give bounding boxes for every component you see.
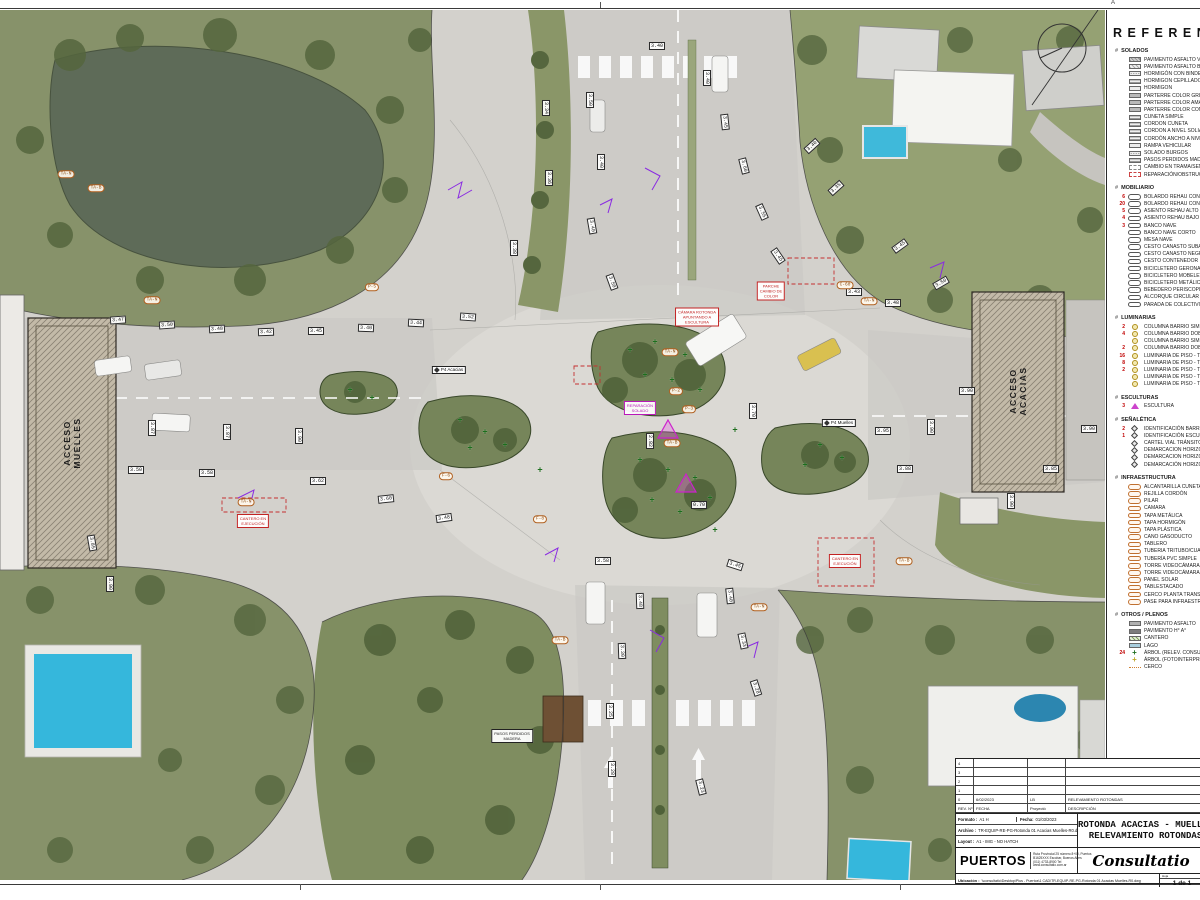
legend-item-label: BANCO NAVE CORTO <box>1144 230 1196 236</box>
legend-item: 2IDENTIFICACIÓN BARRIO <box>1113 425 1200 432</box>
legend-item-icon-lines <box>1128 158 1141 163</box>
legend-item-icon-circy <box>1128 374 1141 380</box>
legend-item-icon-gray <box>1128 107 1141 112</box>
legend-item: 2COLUMNA BARRIO DOBLE PEATONAL BAJA <box>1113 345 1200 352</box>
ovalo-icon <box>1128 563 1141 569</box>
legend-item: BANCO NAVE CORTO <box>1113 229 1200 236</box>
legend-item-count: 2 <box>1113 367 1125 373</box>
legend-section: #MOBILIARIO6BOLARDO REHAU CON LUZ20BOLAR… <box>1113 185 1200 308</box>
legend-item-label: CERCO PLANTA TRANSFORMADORA <box>1144 592 1200 598</box>
dots-icon <box>1129 71 1141 76</box>
legend-item-icon-swcant <box>1128 636 1141 641</box>
legend-item-icon-plusg: + <box>1128 650 1141 655</box>
legend-item-icon-circy <box>1128 345 1141 351</box>
legend-item-label: PAVIMENTO H° A° <box>1144 628 1186 634</box>
legend-item-label: HORMIGÓN CON BINDER <box>1144 71 1200 77</box>
legend-item-label: TAPA METÁLICA <box>1144 513 1182 519</box>
revision-cell <box>1066 759 1200 768</box>
revision-cell: FECHA <box>974 804 1028 813</box>
legend-item: CESTO CANASTO SUBA <box>1113 244 1200 251</box>
swha-icon <box>1129 629 1141 634</box>
hatch2-icon <box>1129 57 1141 62</box>
sheet-number-value: 1 de 1 <box>1160 879 1200 887</box>
format-value: A1 H <box>979 817 988 822</box>
legend-item-label: IDENTIFICACIÓN BARRIO <box>1144 426 1200 432</box>
legend-item-label: ÁRBOL (FOTOINTERPRETACIÓN) <box>1144 657 1200 663</box>
swasph-icon <box>1129 621 1141 626</box>
legend-item: REPARACIÓN/OBSTRUCCIÓN EN SOLADO <box>1113 171 1200 178</box>
ovalo-icon <box>1128 585 1141 591</box>
legend-item: COLUMNA BARRIO SIMPLE PEATONAL BAJA <box>1113 338 1200 345</box>
legend-item-icon-hatch1 <box>1128 64 1141 69</box>
legend-section: #OTROS / PLENOSPAVIMENTO ASFALTOPAVIMENT… <box>1113 612 1200 670</box>
legend-item-label: BOLARDO REHAU CON REFLECTIVO <box>1144 201 1200 207</box>
legend-item: ALCORQUE CIRCULAR SIMPLE <box>1113 294 1200 301</box>
ovalo-icon <box>1128 498 1141 504</box>
legend-item-label: TABLESTACADO <box>1144 584 1183 590</box>
plusy-icon: + <box>1132 657 1137 662</box>
legend-item-label: ALCANTARILLA CUNETA <box>1144 484 1200 490</box>
legend-item-label: SOLADO BURGOS <box>1144 150 1188 156</box>
ovalo-icon <box>1128 577 1141 583</box>
legend-item: CORDÓN A NIVEL SOLIA INTERTRABADA <box>1113 128 1200 135</box>
legend-item: TUBERÍA TRITUBO/CUATRITUBO <box>1113 548 1200 555</box>
location-path-row: Ubicación : \\consultatio\Desktop\Plus -… <box>956 874 1160 887</box>
legend-item-icon-circy <box>1128 338 1141 344</box>
legend-item-label: COLUMNA BARRIO SIMPLE VIAL ALTA <box>1144 324 1200 330</box>
legend-item-icon-oval <box>1128 273 1141 279</box>
legend-item-icon-oval <box>1128 280 1141 286</box>
dashr-icon <box>1129 172 1141 177</box>
legend-item-icon-oval <box>1128 266 1141 272</box>
legend-item-label: PARTERRE COLOR COMB. AMARILLO Y ROJO <box>1144 107 1200 113</box>
legend-item-label: TUBERÍA PVC SIMPLE <box>1144 556 1197 562</box>
legend-item: TUBERÍA PVC SIMPLE <box>1113 555 1200 562</box>
legend-item-label: COLUMNA BARRIO DOBLE PEATONAL BAJA <box>1144 345 1200 351</box>
legend-item-icon-ovalo <box>1128 527 1141 533</box>
lines-icon <box>1129 79 1141 84</box>
diam-icon <box>1131 425 1138 432</box>
ovalo-icon <box>1128 570 1141 576</box>
revision-cell: 3 <box>956 768 974 777</box>
revision-cell <box>1066 777 1200 786</box>
legend-item: PAVIMENTO ASFALTO BICISENDA <box>1113 63 1200 70</box>
legend-item-icon-plusy: + <box>1128 657 1141 662</box>
legend-item-label: BICICLETERO METÁLICO <box>1144 280 1200 286</box>
legend-item: LUMINARIA DE PISO - TIPO TIRA LED <box>1113 381 1200 388</box>
legend-item: 2COLUMNA BARRIO SIMPLE VIAL ALTA <box>1113 323 1200 330</box>
ovalo-icon <box>1128 520 1141 526</box>
legend-item-icon-swha <box>1128 629 1141 634</box>
revision-cell <box>1066 786 1200 795</box>
legend-item: BICICLETERO GERONA <box>1113 265 1200 272</box>
legend-item: 24+ÁRBOL (RELEV. CONSULTATIO) <box>1113 649 1200 656</box>
legend-item-icon-gray <box>1128 100 1141 105</box>
revision-cell: REV. Nº <box>956 804 974 813</box>
oval-icon <box>1128 287 1141 293</box>
legend-item: CORDÓN ANCHO A NIVEL SOLIA INTERTRABADA <box>1113 135 1200 142</box>
legend-item: TORRE VIDEOCÁMARA SIMPLE <box>1113 562 1200 569</box>
circy-icon <box>1132 360 1138 366</box>
legend-item-label: PARTERRE COLOR GRIS <box>1144 93 1200 99</box>
ovalo-icon <box>1128 542 1141 548</box>
legend-item: PARTERRE COLOR GRIS <box>1113 92 1200 99</box>
legend-item-count: 16 <box>1113 353 1125 359</box>
legend-item-icon-circy <box>1128 324 1141 330</box>
dashg-icon <box>1129 165 1141 170</box>
legend-item-icon-ovalo <box>1128 506 1141 512</box>
revision-cell: RELEVAMIENTO ROTONDAS <box>1066 795 1200 804</box>
legend-item-icon-hatch2 <box>1128 57 1141 62</box>
oval-icon <box>1128 259 1141 265</box>
lines-icon <box>1129 129 1141 134</box>
legend-item-icon-ovalo <box>1128 513 1141 519</box>
diam-icon <box>1131 432 1138 439</box>
legend-item-label: CERCO <box>1144 664 1162 670</box>
format-row: Formato :A1 H Fecha:01/03/2023 <box>956 814 1077 825</box>
revision-cell <box>1028 777 1066 786</box>
ovalo-icon <box>1128 592 1141 598</box>
frame-tick <box>900 884 901 890</box>
legend-item-icon-dots <box>1128 151 1141 156</box>
legend-item: 8LUMINARIA DE PISO - TIPO CILINDRO ALTO <box>1113 359 1200 366</box>
legend-item-icon-circy <box>1128 360 1141 366</box>
legend-item-icon-diam <box>1128 441 1141 446</box>
circy-icon <box>1132 374 1138 380</box>
legend-item-icon-circy <box>1128 353 1141 359</box>
ovalo-icon <box>1128 491 1141 497</box>
swcant-icon <box>1129 636 1141 641</box>
legend-item-icon-dashr <box>1128 172 1141 177</box>
oval-icon <box>1128 230 1141 236</box>
legend-item-count: 4 <box>1113 215 1125 221</box>
legend-item: TABLESTACADO <box>1113 584 1200 591</box>
file-row: Archivo :TR-EQUIP-RE-PG-Rotonda 01 Acaci… <box>956 825 1077 836</box>
revision-cell <box>974 786 1028 795</box>
sheet-number-cell: Hoja 1 de 1 <box>1160 874 1200 887</box>
revision-cell: 0 <box>956 795 974 804</box>
legend-item: CERCO PLANTA TRANSFORMADORA <box>1113 591 1200 598</box>
legend-section-title: #INFRAESTRUCTURA <box>1115 475 1200 481</box>
legend-item: PARTERRE COLOR COMB. AMARILLO Y ROJO <box>1113 106 1200 113</box>
oval-icon <box>1128 216 1141 222</box>
legend-item: TAPA HORMIGÓN <box>1113 519 1200 526</box>
legend-item-label: TORRE VIDEOCÁMARA SIMPLE <box>1144 563 1200 569</box>
legend-item-icon-ovalo <box>1128 549 1141 555</box>
legend-item-icon-light <box>1128 86 1141 91</box>
drawing-sheet: A <box>0 0 1200 900</box>
revision-cell <box>1028 768 1066 777</box>
legend-item-label: ASIENTO REHAU BAJO <box>1144 215 1199 221</box>
legend-item: HORMIGÓN CEPILLADO <box>1113 78 1200 85</box>
oval-icon <box>1128 295 1141 301</box>
legend-item: 2LUMINARIA DE PISO - TIPO CILINDRO BAJO <box>1113 366 1200 373</box>
revision-cell: 6/02/2023 <box>974 795 1028 804</box>
legend-item: +ÁRBOL (FOTOINTERPRETACIÓN) <box>1113 656 1200 663</box>
oval-icon <box>1128 223 1141 229</box>
legend-item-icon-gray <box>1128 93 1141 98</box>
legend-item-label: CARTEL VIAL TRÁNSITO-ORIENTACIÓN <box>1144 440 1200 446</box>
legend-item: CAÑO GASODUCTO <box>1113 534 1200 541</box>
legend-item-label: CAMBIO EN TRAMA/SENTIDO ADOQUINADO <box>1144 164 1200 170</box>
legend-item-icon-lines <box>1128 79 1141 84</box>
ovalo-icon <box>1128 549 1141 555</box>
legend-item: CESTO CONTENEDOR <box>1113 258 1200 265</box>
oval-icon <box>1128 302 1141 308</box>
legend-item-label: TABLERO <box>1144 541 1167 547</box>
legend-item: 5ASIENTO REHAU ALTO <box>1113 208 1200 215</box>
legend-item: HORMIGÓN CON BINDER <box>1113 70 1200 77</box>
layout-row: Layout :A1 - IMG - NO HATCH <box>956 836 1077 847</box>
legend-item-icon-dashg <box>1128 165 1141 170</box>
legend-item-label: HORMIGÓN <box>1144 85 1172 91</box>
ovalo-icon <box>1128 484 1141 490</box>
legend-item-count: 24 <box>1113 650 1125 656</box>
section-mark-icon: # <box>1115 612 1118 618</box>
legend-item: PAVIMENTO H° A° <box>1113 628 1200 635</box>
legend-item: CÁMARA <box>1113 505 1200 512</box>
legend-item-count: 2 <box>1113 324 1125 330</box>
circy-icon <box>1132 331 1138 337</box>
legend-item-label: CORDÓN A NIVEL SOLIA INTERTRABADA <box>1144 128 1200 134</box>
section-mark-icon: # <box>1115 417 1118 423</box>
legend-item: CUNETA SIMPLE <box>1113 114 1200 121</box>
legend-item: 16LUMINARIA DE PISO - TIPO RECTANGULAR <box>1113 352 1200 359</box>
legend-item-count: 3 <box>1113 403 1125 409</box>
legend-item-label: ÁRBOL (RELEV. CONSULTATIO) <box>1144 650 1200 656</box>
legend-item-count: 1 <box>1113 433 1125 439</box>
circy-icon <box>1132 345 1138 351</box>
section-mark-icon: # <box>1115 315 1118 321</box>
frame-tick <box>600 884 601 890</box>
revision-cell: 2 <box>956 777 974 786</box>
legend-item-icon-oval <box>1128 287 1141 293</box>
legend-item-label: ESCULTURA <box>1144 403 1174 409</box>
oval-icon <box>1128 266 1141 272</box>
legend-item-label: CESTO CANASTO SUBA <box>1144 244 1200 250</box>
light-icon <box>1129 143 1141 148</box>
oval-icon <box>1128 237 1141 243</box>
plusg-icon: + <box>1132 650 1137 655</box>
frame-tick <box>600 2 601 8</box>
drawing-title-line1: ROTONDA ACACIAS - MUELLES <box>1078 820 1200 831</box>
legend-section-title: #SEÑALÉTICA <box>1115 417 1200 423</box>
legend-item: BICICLETERO MOBELETTA <box>1113 272 1200 279</box>
legend-item: PAVIMENTO ASFALTO <box>1113 620 1200 627</box>
legend-item-count: 20 <box>1113 201 1125 207</box>
legend-item-label: PAVIMENTO ASFALTO BICISENDA <box>1144 64 1200 70</box>
legend-item-icon-ovalo <box>1128 585 1141 591</box>
legend-item: TAPA METÁLICA <box>1113 512 1200 519</box>
revision-cell <box>974 777 1028 786</box>
legend-panel: REFERENCIAS #SOLADOSPAVIMENTO ASFALTO VE… <box>1106 10 1200 882</box>
legend-item: DEMARCACIÓN HORIZONTAL ROTONDA <box>1113 454 1200 461</box>
legend-item-label: PARADA DE COLECTIVO <box>1144 302 1200 308</box>
legend-item-label: TAPA HORMIGÓN <box>1144 520 1185 526</box>
legend-item-icon-diam <box>1128 462 1141 467</box>
legend-item: PARADA DE COLECTIVO <box>1113 301 1200 308</box>
legend-item-icon-ovalo <box>1128 491 1141 497</box>
legend-item-label: RAMPA VEHICULAR <box>1144 143 1191 149</box>
legend-item: PASE PARA INFRAESTRUCTURA (EN DESUSO) <box>1113 598 1200 605</box>
legend-item-icon-oval <box>1128 252 1141 258</box>
legend-item-label: PASE PARA INFRAESTRUCTURA (EN DESUSO) <box>1144 599 1200 605</box>
legend-item: DEMARCACIÓN HORIZONTAL BICISENDA <box>1113 461 1200 468</box>
oval-icon <box>1128 280 1141 286</box>
legend-item-icon-oval <box>1128 244 1141 250</box>
legend-item-label: LUMINARIA DE PISO - TIPO RECTANGULAR <box>1144 353 1200 359</box>
legend-item: REJILLA CORDÓN <box>1113 490 1200 497</box>
legend-item: PASOS PERDIDOS MADERA <box>1113 157 1200 164</box>
legend-item-label: BANCO NAVE <box>1144 223 1176 229</box>
lines-icon <box>1129 115 1141 120</box>
legend-item: 6BOLARDO REHAU CON LUZ <box>1113 193 1200 200</box>
legend-item: PARTERRE COLOR AMARILLO <box>1113 99 1200 106</box>
legend-item-label: LUMINARIA DE PISO - TIPO CILINDRO ALTO <box>1144 360 1200 366</box>
legend-item: BICICLETERO METÁLICO <box>1113 279 1200 286</box>
legend-item-icon-circy <box>1128 367 1141 373</box>
swlago-icon <box>1129 643 1141 648</box>
ovalo-icon <box>1128 556 1141 562</box>
legend-section: #ESCULTURAS3ESCULTURA <box>1113 395 1200 410</box>
section-mark-icon: # <box>1115 48 1118 54</box>
legend-item-icon-ovalo <box>1128 484 1141 490</box>
legend-item: CARTEL VIAL TRÁNSITO-ORIENTACIÓN <box>1113 439 1200 446</box>
legend-item-label: LUMINARIA DE PISO - TIPO EMPOTRABLE <box>1144 374 1200 380</box>
legend-item: BEBEDERO PERISCOPIO <box>1113 287 1200 294</box>
legend-item-label: TORRE VIDEOCÁMARA MÚLTIPLE <box>1144 570 1200 576</box>
legend-item-label: CAÑO GASODUCTO <box>1144 534 1192 540</box>
legend-item-icon-lines <box>1128 129 1141 134</box>
legend-item-icon-ovalo <box>1128 563 1141 569</box>
section-mark-icon: # <box>1115 185 1118 191</box>
legend-item-count: 8 <box>1113 360 1125 366</box>
ovalo-icon <box>1128 506 1141 512</box>
circy-icon <box>1132 353 1138 359</box>
legend-item-label: ALCORQUE CIRCULAR SIMPLE <box>1144 294 1200 300</box>
light-icon <box>1129 86 1141 91</box>
revision-cell: DESCRIPCIÓN <box>1066 804 1200 813</box>
legend-section-title: #ESCULTURAS <box>1115 395 1200 401</box>
legend-item: 4COLUMNA BARRIO DOBLE VIAL ALTA <box>1113 330 1200 337</box>
layout-value: A1 - IMG - NO HATCH <box>976 839 1018 844</box>
title-block: 432106/02/2023LBRELEVAMIENTO ROTONDASREV… <box>955 758 1200 884</box>
gray-icon <box>1129 100 1141 105</box>
lines-icon <box>1129 122 1141 127</box>
legend-item: SOLADO BURGOS <box>1113 149 1200 156</box>
legend-section: #SOLADOSPAVIMENTO ASFALTO VEHICULARPAVIM… <box>1113 48 1200 178</box>
file-value: TR-EQUIP-RE-PG-Rotonda 01 Acacias Muelle… <box>978 828 1077 833</box>
legend-item-icon-diam <box>1128 448 1141 453</box>
legend-item-label: CANTERO <box>1144 635 1168 641</box>
legend-item-icon-ovalo <box>1128 599 1141 605</box>
legend-item: LAGO <box>1113 642 1200 649</box>
trim-icon <box>1131 403 1139 409</box>
legend-section-title: #MOBILIARIO <box>1115 185 1200 191</box>
legend-item-icon-oval <box>1128 259 1141 265</box>
circy-icon <box>1132 338 1138 344</box>
section-mark-icon: # <box>1115 395 1118 401</box>
legend-item-icon-oval <box>1128 223 1141 229</box>
legend-item-icon-circy <box>1128 331 1141 337</box>
diam-icon <box>1131 454 1138 461</box>
legend-item: TORRE VIDEOCÁMARA MÚLTIPLE <box>1113 569 1200 576</box>
circy-icon <box>1132 367 1138 373</box>
revision-cell <box>1066 768 1200 777</box>
legend-item-label: LUMINARIA DE PISO - TIPO TIRA LED <box>1144 381 1200 387</box>
consultatio-logo: Consultatio <box>1078 848 1200 873</box>
puertos-logo: PUERTOS <box>956 853 1030 868</box>
legend-item-count: 5 <box>1113 208 1125 214</box>
legend-item-icon-oval <box>1128 201 1141 207</box>
legend-item-label: ASIENTO REHAU ALTO <box>1144 208 1198 214</box>
oval-icon <box>1128 201 1141 207</box>
date-value: 01/03/2023 <box>1036 817 1057 822</box>
lines-icon <box>1129 136 1141 141</box>
legend-item-icon-trim <box>1128 403 1141 409</box>
legend-item-label: DEMARCACIÓN HORIZONTAL VIAL <box>1144 447 1200 453</box>
legend-section: #LUMINARIAS2COLUMNA BARRIO SIMPLE VIAL A… <box>1113 315 1200 388</box>
legend-section-title: #LUMINARIAS <box>1115 315 1200 321</box>
legend-item: MESA NAVE <box>1113 236 1200 243</box>
revision-cell <box>1028 786 1066 795</box>
legend-item-icon-oval <box>1128 295 1141 301</box>
legend-item-label: CUNETA SIMPLE <box>1144 114 1184 120</box>
legend-item-label: PILAR <box>1144 498 1158 504</box>
legend-item-label: CESTO CANASTO NEGRO <box>1144 251 1200 257</box>
dots-icon <box>1129 151 1141 156</box>
revision-cell <box>974 768 1028 777</box>
legend-item-label: BEBEDERO PERISCOPIO <box>1144 287 1200 293</box>
legend-item-label: BICICLETERO MOBELETTA <box>1144 273 1200 279</box>
legend-item-count: 2 <box>1113 426 1125 432</box>
legend-item-label: LUMINARIA DE PISO - TIPO CILINDRO BAJO <box>1144 367 1200 373</box>
legend-item: LUMINARIA DE PISO - TIPO EMPOTRABLE <box>1113 374 1200 381</box>
legend-item: DEMARCACIÓN HORIZONTAL VIAL <box>1113 447 1200 454</box>
legend-item-count: 3 <box>1113 223 1125 229</box>
legend-item-icon-diam <box>1128 433 1141 438</box>
legend-item-count: 4 <box>1113 331 1125 337</box>
drawing-title: ROTONDA ACACIAS - MUELLES RELEVAMIENTO R… <box>1078 814 1200 847</box>
ovalo-icon <box>1128 527 1141 533</box>
legend-item-icon-oval <box>1128 230 1141 236</box>
revision-cell: LB <box>1028 795 1066 804</box>
legend-item-icon-light <box>1128 143 1141 148</box>
legend-item-label: MESA NAVE <box>1144 237 1173 243</box>
ovalo-icon <box>1128 534 1141 540</box>
legend-item-icon-lines <box>1128 122 1141 127</box>
legend-item-label: BICICLETERO GERONA <box>1144 266 1200 272</box>
legend-item: 20BOLARDO REHAU CON REFLECTIVO <box>1113 200 1200 207</box>
revision-cell <box>1028 759 1066 768</box>
legend-item: CORDÓN CUNETA <box>1113 121 1200 128</box>
legend-item-label: IDENTIFICACIÓN ESCULTURA <box>1144 433 1200 439</box>
legend-item-icon-oval <box>1128 208 1141 214</box>
legend-item-label: TAPA PLÁSTICA <box>1144 527 1182 533</box>
diam-icon <box>1131 447 1138 454</box>
oval-icon <box>1128 194 1141 200</box>
legend-item-icon-ovalo <box>1128 542 1141 548</box>
section-mark-icon: # <box>1115 475 1118 481</box>
legend-item-icon-lines <box>1128 136 1141 141</box>
frame-tick <box>300 884 301 890</box>
legend-item-label: BOLARDO REHAU CON LUZ <box>1144 194 1200 200</box>
legend-item: CESTO CANASTO NEGRO <box>1113 251 1200 258</box>
legend-item-label: PANEL SOLAR <box>1144 577 1178 583</box>
legend-item: PILAR <box>1113 498 1200 505</box>
oval-icon <box>1128 273 1141 279</box>
legend-item: RAMPA VEHICULAR <box>1113 142 1200 149</box>
